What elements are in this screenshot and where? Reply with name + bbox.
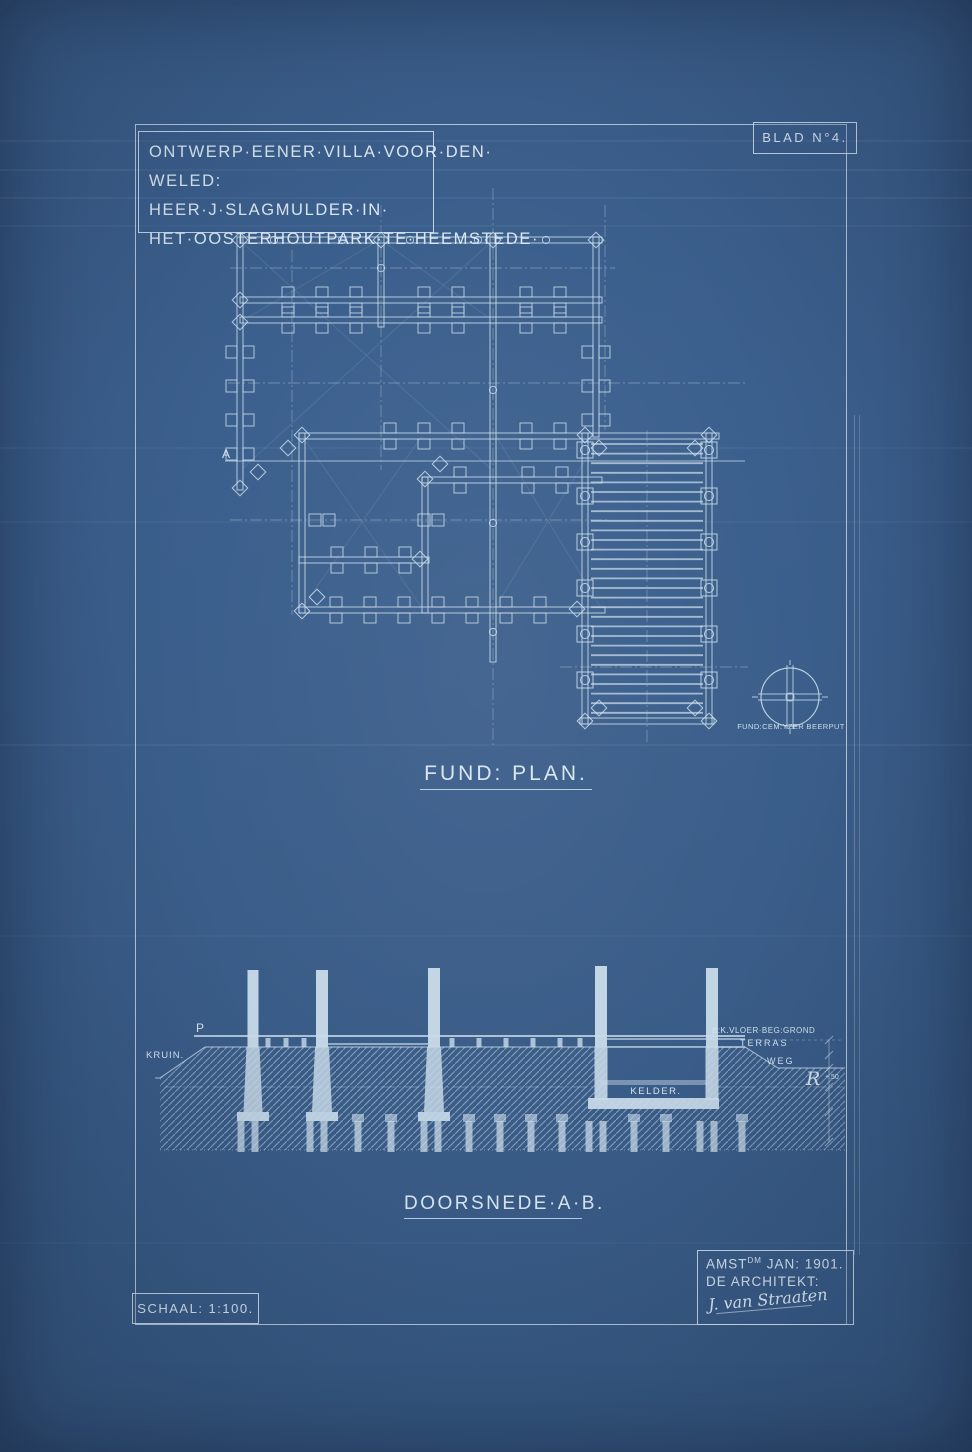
title-block: ONTWERP·EENER·VILLA·VOOR·DEN· WELED: HEE…: [138, 131, 434, 233]
colophon-date-rest: JAN: 1901.: [762, 1257, 844, 1272]
colophon-date: AMSTDM JAN: 1901.: [706, 1256, 853, 1272]
sheet-number-box: BLAD N°4.: [753, 122, 857, 154]
colophon-city: AMST: [706, 1257, 748, 1272]
section-label-weg: WEG: [767, 1056, 795, 1066]
title-line-1: ONTWERP·EENER·VILLA·VOOR·DEN·: [149, 138, 433, 167]
section-caption: DOORSNEDE·A·B.: [404, 1193, 582, 1219]
plan-caption: FUND: PLAN.: [420, 762, 592, 790]
colophon-city-sup: DM: [748, 1256, 762, 1265]
foundation-plan-drawing: [225, 188, 748, 748]
colophon-architect: DE ARCHITEKT:: [706, 1274, 853, 1289]
sheet-number: BLAD N°4.: [762, 130, 848, 145]
scale-box: SCHAAL: 1:100.: [132, 1293, 259, 1324]
datum-mark-r: R: [806, 1068, 820, 1090]
section-label-vloer: B:K.VLOER·BEG:GROND: [712, 1026, 815, 1035]
section-marker-a: A: [222, 447, 230, 461]
scale-label: SCHAAL: 1:100.: [137, 1301, 253, 1316]
title-line-3: HET·OOSTERHOUTPARK·TE·HEEMSTEDE·: [149, 225, 433, 254]
section-label-p: P: [196, 1021, 204, 1035]
section-label-kruin: KRUIN.: [146, 1050, 184, 1061]
section-label-terras: TERRAS: [740, 1038, 789, 1048]
cross-section-drawing: [155, 966, 845, 1152]
beerput-label: FUND:CEM:YZER BEERPUT: [728, 722, 854, 731]
datum-value: +.50: [825, 1074, 839, 1081]
blueprint-sheet: ONTWERP·EENER·VILLA·VOOR·DEN· WELED: HEE…: [0, 0, 972, 1452]
colophon-box: AMSTDM JAN: 1901. DE ARCHITEKT: J. van S…: [697, 1250, 854, 1325]
section-label-kelder: KELDER.: [616, 1086, 696, 1097]
title-line-2: WELED: HEER·J·SLAGMULDER·IN·: [149, 167, 433, 225]
